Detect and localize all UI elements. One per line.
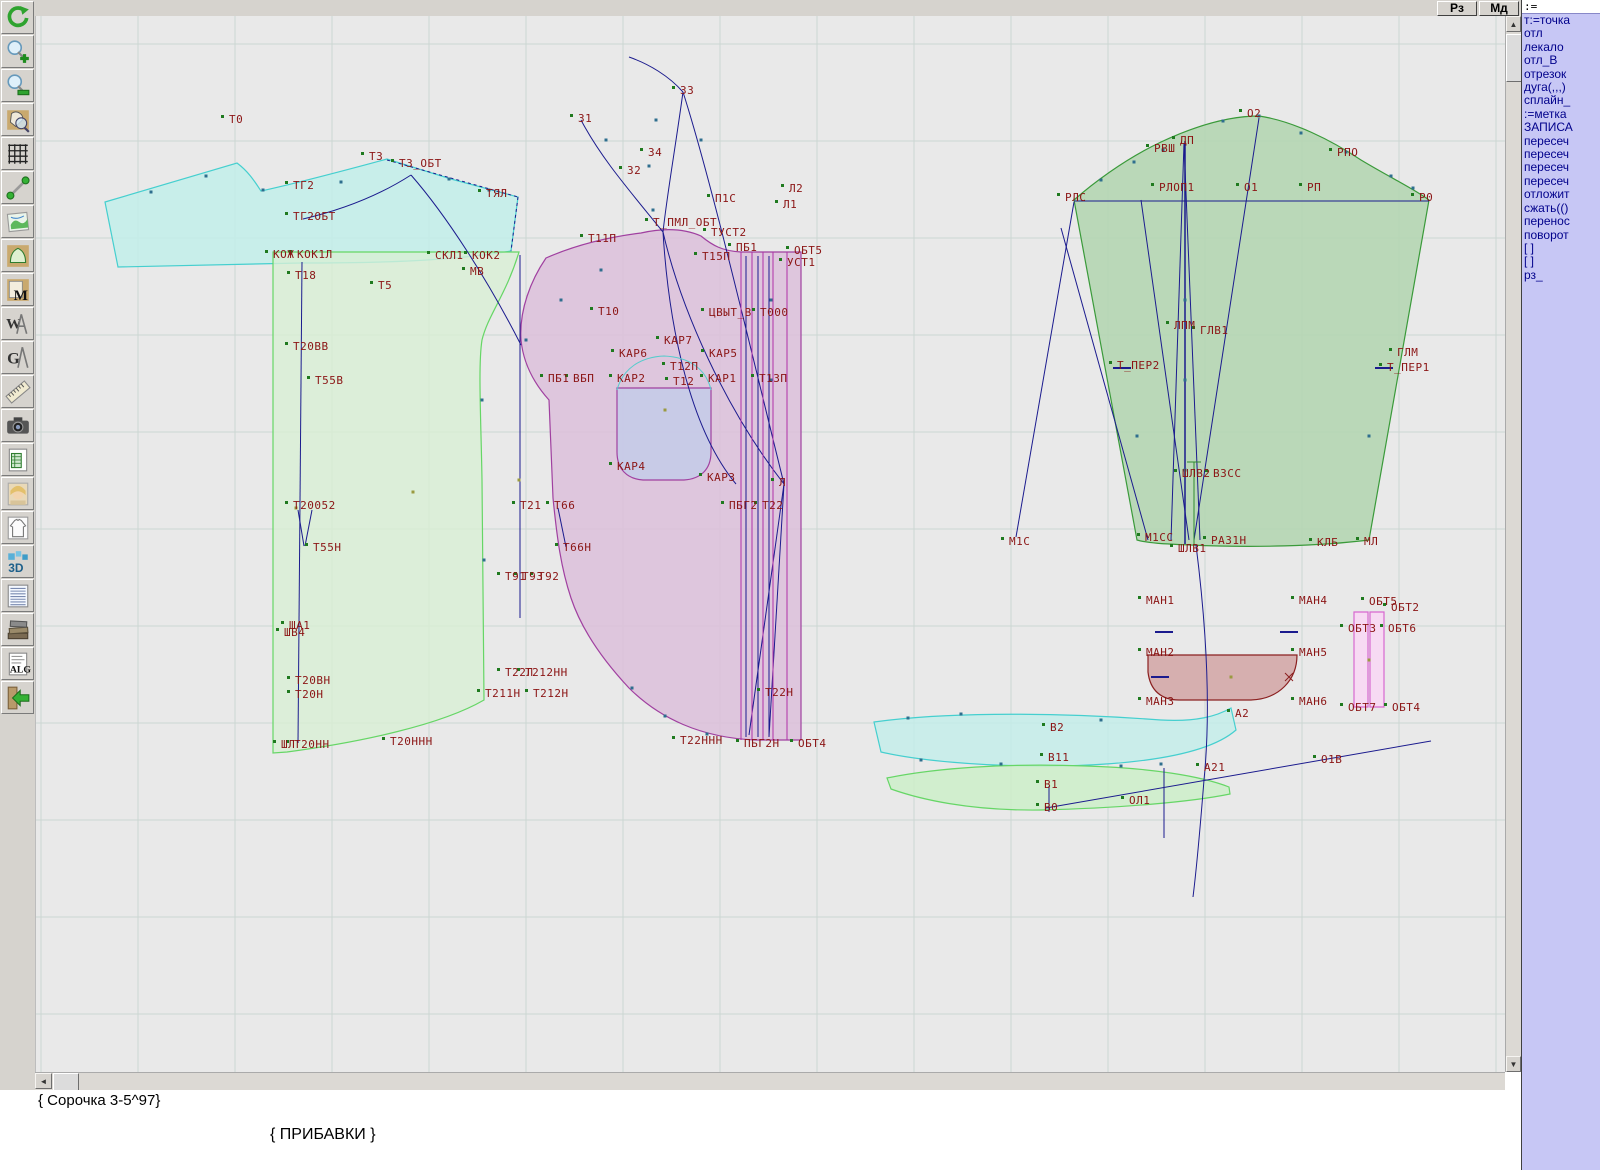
point-label: В1 <box>1044 778 1058 791</box>
point-label: КОЖ <box>273 248 294 261</box>
point-label: Р0 <box>1419 191 1433 204</box>
point-label: ТГ2 <box>293 179 314 192</box>
size-table-icon <box>5 583 31 609</box>
point-label: А21 <box>1204 761 1225 774</box>
command-item[interactable]: поворот <box>1522 229 1600 242</box>
point-label: Т21 <box>520 499 541 512</box>
zoom-out-icon <box>5 73 31 99</box>
point-label: Л <box>779 476 786 489</box>
point-label: В2 <box>1050 721 1064 734</box>
command-list: т:=точкаотллекалоотл_Вотрезокдуга(,,,)сп… <box>1522 14 1600 282</box>
point-label: Т211Н <box>485 687 521 700</box>
measure-line-icon <box>5 175 31 201</box>
point-label: РП <box>1307 181 1321 194</box>
command-item[interactable]: пересеч <box>1522 161 1600 174</box>
pattern-piece-icon <box>5 243 31 269</box>
point-label: ШЛВ2 <box>1182 467 1211 480</box>
point-label: КОК2 <box>472 249 501 262</box>
point-label: ОБТ3 <box>1348 622 1377 635</box>
undo-refresh-icon <box>5 5 31 31</box>
alg-document-button[interactable]: ALG <box>1 647 34 680</box>
point-label: З3 <box>680 84 694 97</box>
pattern-cad-window: { "window": { "topbar_buttons": [ {"labe… <box>0 0 1600 1170</box>
measure-line-button[interactable] <box>1 171 34 204</box>
top-bar <box>35 0 1521 17</box>
compass-g-icon: G <box>5 345 31 371</box>
command-item[interactable]: ЗАПИСА <box>1522 121 1600 134</box>
point-label: Т12П <box>670 360 699 373</box>
point-label: З4 <box>648 146 662 159</box>
pattern-piece-button[interactable] <box>1 239 34 272</box>
command-item[interactable]: дуга(,,,) <box>1522 81 1600 94</box>
point-label: ПБ1 <box>548 372 569 385</box>
point-label: Т212НН <box>525 666 568 679</box>
piece-collar-lower[interactable] <box>887 765 1230 810</box>
point-label: МАН5 <box>1299 646 1328 659</box>
point-label: Т20НН <box>294 738 330 751</box>
algorithm-text-area: { Сорочка 3-5^97} { ПРИБАВКИ } <box>0 1090 1521 1170</box>
point-label: РПО <box>1337 146 1358 159</box>
zoom-out-button[interactable] <box>1 69 34 102</box>
horizontal-scroll-thumb[interactable] <box>53 1073 79 1091</box>
point-label: З2 <box>627 164 641 177</box>
point-label: Т55Н <box>313 541 342 554</box>
left-toolbar: M W G 3D ALG <box>0 0 35 1090</box>
camera-button[interactable] <box>1 409 34 442</box>
portrait-icon <box>5 481 31 507</box>
command-item[interactable]: пересеч <box>1522 175 1600 188</box>
command-item[interactable]: отл <box>1522 27 1600 40</box>
point-label: Т_ПЕР2 <box>1117 359 1160 372</box>
point-label: З1 <box>578 112 592 125</box>
undo-refresh-button[interactable] <box>1 1 34 34</box>
point-label: ЦВЫТ_В <box>709 306 752 319</box>
point-label: РАЗ1Н <box>1211 534 1247 547</box>
point-label: Т20Н <box>295 688 324 701</box>
pattern-m-icon: M <box>5 277 31 303</box>
point-label: О1 <box>1244 181 1258 194</box>
scroll-left-button[interactable]: ◄ <box>35 1073 52 1089</box>
scroll-down-button[interactable]: ▼ <box>1506 1056 1521 1072</box>
vertical-scrollbar[interactable]: ▲ ▼ <box>1505 16 1521 1072</box>
point-label: М1СС <box>1145 531 1174 544</box>
point-label: Т20ВВ <box>293 340 329 353</box>
point-label: РВШ <box>1154 142 1175 155</box>
svg-text:M: M <box>13 286 27 302</box>
point-label: КАР2 <box>617 372 646 385</box>
ruler-icon <box>5 379 31 405</box>
point-label: Т_ПМЛ_ОБТ <box>653 216 717 229</box>
point-label: Т20052 <box>293 499 336 512</box>
point-label: РЛОП1 <box>1159 181 1195 194</box>
command-item[interactable]: рз_ <box>1522 269 1600 282</box>
point-label: КАР4 <box>617 460 646 473</box>
garment-sketch-button[interactable] <box>1 511 34 544</box>
camera-icon <box>5 413 31 439</box>
point-label: Т5 <box>378 279 392 292</box>
3d-view-button[interactable]: 3D <box>1 545 34 578</box>
zoom-in-icon <box>5 39 31 65</box>
command-input[interactable]: := <box>1522 0 1600 14</box>
3d-view-icon: 3D <box>5 549 31 575</box>
point-label: КЛБ <box>1317 536 1338 549</box>
point-label: Т15П <box>702 250 731 263</box>
command-item[interactable]: отрезок <box>1522 68 1600 81</box>
point-label: ЛПМ <box>1174 319 1195 332</box>
point-label: ВЗСС <box>1213 467 1242 480</box>
image-map-button[interactable] <box>1 205 34 238</box>
point-label: Т10 <box>598 305 619 318</box>
point-label: МАН2 <box>1146 646 1175 659</box>
point-label: МВ <box>470 265 484 278</box>
point-label: КАР1 <box>708 372 737 385</box>
point-label: В0 <box>1044 801 1058 814</box>
point-label: РЛС <box>1065 191 1086 204</box>
point-label: Т_ПЕР1 <box>1387 361 1430 374</box>
command-item[interactable]: перенос <box>1522 215 1600 228</box>
svg-text:3D: 3D <box>8 560 24 574</box>
point-label: А2 <box>1235 707 1249 720</box>
pattern-drawing[interactable]: Т0Т3Т3_ОБТТГ2ТГ2ОБТТЯЛКОЖКОК1ЛСКЛ1КОК2Т1… <box>36 16 1506 1072</box>
svg-text:ALG: ALG <box>9 664 30 675</box>
command-item[interactable]: [ ] <box>1522 242 1600 255</box>
point-label: Т22ННН <box>680 734 723 747</box>
point-label: ДП <box>1180 134 1194 147</box>
point-label: КАР7 <box>664 334 693 347</box>
point-label: ОБТ4 <box>1392 701 1421 714</box>
books-icon <box>5 617 31 643</box>
command-item[interactable]: сплайн_ <box>1522 94 1600 107</box>
ruler-button[interactable] <box>1 375 34 408</box>
compass-w-button[interactable]: W <box>1 307 34 340</box>
portrait-button[interactable] <box>1 477 34 510</box>
point-label: Л1 <box>783 198 797 211</box>
point-label: П1С <box>715 192 736 205</box>
point-label: ОБТ4 <box>798 737 827 750</box>
point-label: Т18 <box>295 269 316 282</box>
point-label: О2 <box>1247 107 1261 120</box>
point-label: Т55В <box>315 374 344 387</box>
point-label: ВБП <box>573 372 594 385</box>
piece-cuff[interactable] <box>1148 655 1297 700</box>
exit-button[interactable] <box>1 681 34 714</box>
point-label: Т92 <box>538 570 559 583</box>
image-map-icon <box>5 209 31 235</box>
point-label: Т3 <box>369 150 383 163</box>
point-label: КАР5 <box>709 347 738 360</box>
pattern-m-button[interactable]: M <box>1 273 34 306</box>
zoom-pattern-button[interactable] <box>1 103 34 136</box>
point-label: ПБГ2Н <box>744 737 780 750</box>
point-label: МАН4 <box>1299 594 1328 607</box>
command-panel: := т:=точкаотллекалоотл_Вотрезокдуга(,,,… <box>1521 0 1600 1170</box>
compass-w-icon: W <box>5 311 31 337</box>
point-label: СКЛ1 <box>435 249 464 262</box>
point-label: Т212Н <box>533 687 569 700</box>
point-label: Т13П <box>759 372 788 385</box>
zoom-pattern-icon <box>5 107 31 133</box>
point-label: МАН1 <box>1146 594 1175 607</box>
scroll-up-button[interactable]: ▲ <box>1506 16 1521 32</box>
command-item[interactable]: т:=точка <box>1522 14 1600 27</box>
exit-icon <box>5 685 31 711</box>
point-label: КАР6 <box>619 347 648 360</box>
command-item[interactable]: отложит <box>1522 188 1600 201</box>
point-label: Т66 <box>554 499 575 512</box>
point-label: ТГ2ОБТ <box>293 210 336 223</box>
books-button[interactable] <box>1 613 34 646</box>
point-label: КАР3 <box>707 471 736 484</box>
point-label: МЛ <box>1364 535 1378 548</box>
point-label: О1В <box>1321 753 1342 766</box>
point-label: ПБГ2 <box>729 499 758 512</box>
point-label: ГЛМ <box>1397 346 1418 359</box>
spreadsheet-icon <box>5 447 31 473</box>
horizontal-scrollbar[interactable]: ◄ <box>35 1072 1505 1090</box>
point-label: МАН3 <box>1146 695 1175 708</box>
point-label: ГЛВ1 <box>1200 324 1229 337</box>
size-table-button[interactable] <box>1 579 34 612</box>
command-item[interactable]: пересеч <box>1522 148 1600 161</box>
command-item[interactable]: [ ] <box>1522 255 1600 268</box>
compass-g-button[interactable]: G <box>1 341 34 374</box>
point-label: Т66Н <box>563 541 592 554</box>
garment-sketch-icon <box>5 515 31 541</box>
grid-button[interactable] <box>1 137 34 170</box>
zoom-in-button[interactable] <box>1 35 34 68</box>
point-label: Т11П <box>588 232 617 245</box>
rz-button[interactable]: Рз <box>1437 1 1477 16</box>
point-label: МАН6 <box>1299 695 1328 708</box>
point-label: ТЯЛ <box>486 187 507 200</box>
command-item[interactable]: пересеч <box>1522 135 1600 148</box>
point-label: В11 <box>1048 751 1069 764</box>
point-label: Т20ВН <box>295 674 331 687</box>
command-item[interactable]: :=метка <box>1522 108 1600 121</box>
point-label: ШВ4 <box>284 626 305 639</box>
point-label: КОК1Л <box>297 248 333 261</box>
point-label: Т22Н <box>765 686 794 699</box>
point-label: М1С <box>1009 535 1030 548</box>
point-label: ШЛВ1 <box>1178 542 1207 555</box>
command-item[interactable]: отл_В <box>1522 54 1600 67</box>
point-label: ТУСТ2 <box>711 226 747 239</box>
point-label: ОБТ7 <box>1348 701 1377 714</box>
point-label: УСТ1 <box>787 256 816 269</box>
algorithm-section-line: { ПРИБАВКИ } <box>270 1126 376 1144</box>
command-item[interactable]: сжать(() <box>1522 202 1600 215</box>
point-label: ОБТ2 <box>1391 601 1420 614</box>
point-label: Т3_ОБТ <box>399 157 442 170</box>
spreadsheet-button[interactable] <box>1 443 34 476</box>
point-label: Т20ННН <box>390 735 433 748</box>
algorithm-title-line: { Сорочка 3-5^97} <box>38 1092 160 1109</box>
point-label: Т22 <box>762 499 783 512</box>
pattern-canvas[interactable]: Т0Т3Т3_ОБТТГ2ТГ2ОБТТЯЛКОЖКОК1ЛСКЛ1КОК2Т1… <box>35 16 1505 1072</box>
point-label: Т12 <box>673 375 694 388</box>
alg-document-icon: ALG <box>5 651 31 677</box>
point-label: Т000 <box>760 306 789 319</box>
grid-icon <box>5 141 31 167</box>
point-label: ПБ1 <box>736 241 757 254</box>
point-label: ОЛ1 <box>1129 794 1150 807</box>
point-label: Л2 <box>789 182 803 195</box>
md-button[interactable]: Мд <box>1479 1 1519 16</box>
point-label: Т0 <box>229 113 243 126</box>
point-label: ОБТ6 <box>1388 622 1417 635</box>
command-item[interactable]: лекало <box>1522 41 1600 54</box>
